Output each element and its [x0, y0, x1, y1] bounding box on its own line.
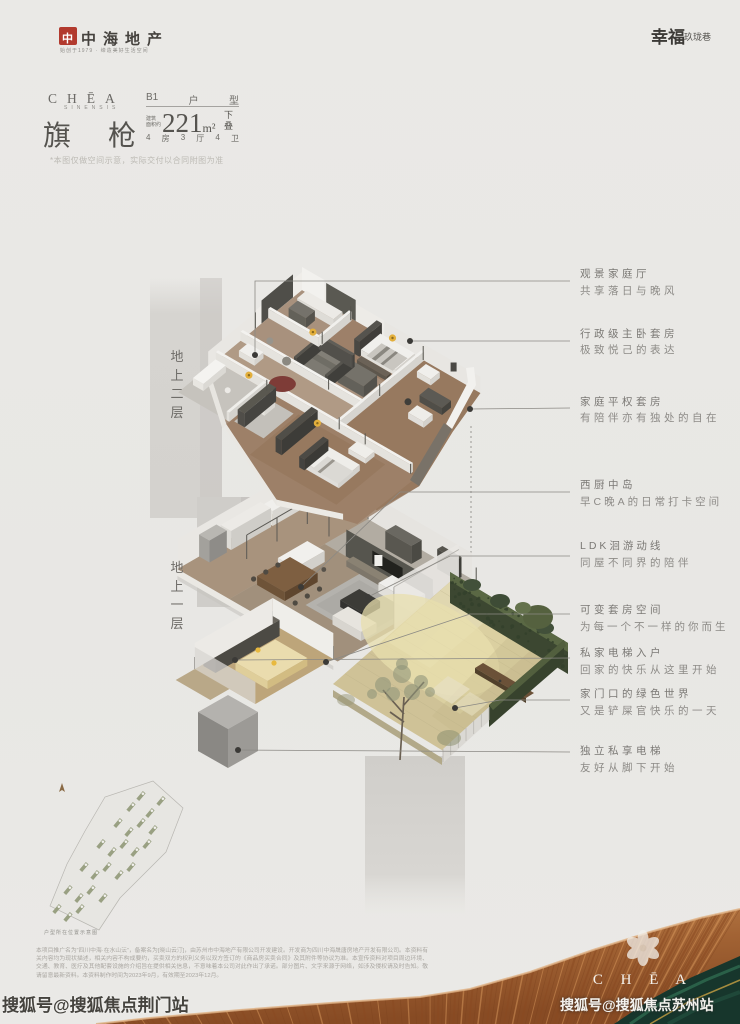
svg-text:C H Ē A: C H Ē A — [593, 972, 693, 988]
